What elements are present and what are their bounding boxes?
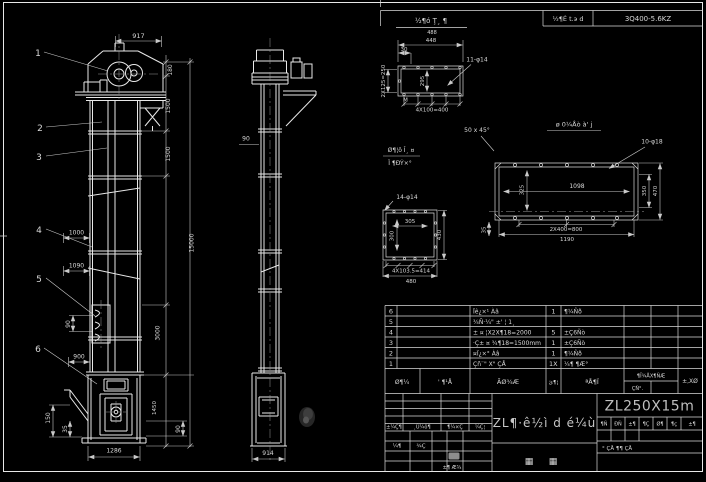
bom-row-qty: 1X [549, 360, 558, 368]
cad-drawing-canvas: ½¶ó Ţ¸ ¶ 488 ½¶É t.э d 3Q400-5.6KZ 1 2 3… [0, 0, 706, 482]
balloon-4: 4 [36, 226, 42, 236]
revision-label: ¶¼×Ç [447, 425, 463, 431]
bom-row-no: 1 [389, 360, 393, 368]
scale-label: ±¶ [688, 422, 695, 428]
revision-label: ¸Ù¼ô¶ [413, 424, 430, 431]
holes-label: 11-φ14 [466, 57, 488, 64]
dim-1190: 1190 [560, 237, 574, 243]
detail-title: ø 0¼Åò à' j [556, 120, 593, 129]
bom-row-no: 4 [389, 329, 393, 337]
detail-square-flange: Ø¶¦ô Î¸ ¤ Ï ¶ÐÝ×° 14-φ14 305 300 430 4X1… [383, 147, 447, 285]
balloon-6: 6 [35, 345, 41, 355]
revision-label: ±¼Ç¶ [386, 425, 402, 431]
dim-1500-a: 1500 [165, 98, 172, 113]
balloon-5: 5 [36, 275, 42, 285]
dim-900: 900 [73, 354, 85, 361]
bom-header-qty: ئ¶¦ [549, 380, 559, 386]
dim-1500-b: 1500 [165, 146, 172, 161]
sheet-row: ° ÇÅ ¶¶ ÇÅ [602, 445, 632, 452]
bom-row-mat: ¶¼Ñð [564, 309, 582, 316]
bom-row-no: 5 [389, 318, 393, 326]
title-block: ±¼Ç¶ ¸Ù¼ô¶ ¶¼×Ç ¼Ç¦ ¼¶ ¾Ç ±¶ Æ¾ ZL¶·ê½ì … [385, 394, 702, 472]
side-boot-outline [250, 373, 287, 446]
holes-label: 10-φ18 [641, 139, 663, 146]
dim-15000: 15000 [189, 233, 196, 252]
bom-row-qty: 1 [551, 339, 555, 347]
bom-header-name: ÃØ¾Æ [497, 377, 519, 386]
side-dim-90: 90 [242, 136, 250, 143]
front-dimensions: 917 1000 1090 90 900 150 35 1286 90 180 … [45, 32, 285, 462]
balloon-leader-lines [44, 52, 108, 384]
dim-3000: 3000 [155, 325, 162, 340]
signature-label-right: ¾Ç [416, 444, 425, 450]
bolt-holes [398, 66, 461, 95]
spacing-dim-line [384, 263, 437, 268]
detail-title-line1: Ø¶¦ô Î¸ ¤ [388, 147, 415, 154]
dim-325: 325 [520, 184, 526, 195]
front-casing-outline [86, 101, 163, 376]
scale-label: ¶Ç [643, 422, 650, 428]
detail-long-flange: ø 0¼Åò à' j 10-φ18 1098 325 350 470 2X40… [482, 120, 664, 244]
dim-30: 30 [401, 47, 408, 53]
product-title: ZL¶·ê½ì d é¼ù [493, 416, 597, 430]
balloon-2: 2 [37, 124, 43, 134]
dim-35-left: 35 [62, 425, 69, 433]
screen-smudge [299, 407, 315, 427]
top-cell-left: ½¶É t.э d [553, 14, 584, 23]
dim-917: 917 [132, 32, 144, 40]
bom-row-no: 6 [389, 308, 393, 316]
dim-2x400: 2X400=800 [550, 227, 583, 233]
weld-mark: M [403, 98, 408, 104]
dim-right: 430 [437, 229, 443, 240]
dim-overall: 448 [426, 38, 437, 44]
dim-470: 470 [653, 185, 659, 196]
top-cell-right: 3Q400-5.6KZ [625, 15, 672, 23]
bom-row-name: ¾Ñ·¼" ±' ¦ 1¸ [473, 319, 515, 326]
bom-row-qty: 1 [551, 308, 555, 316]
dim-inner-h: 305 [405, 219, 416, 225]
bom-row-mat: ±Ç6Ñò [564, 340, 586, 347]
drawing-type-glyph-right: ▦ [549, 457, 558, 467]
dim-1090: 1090 [69, 263, 84, 270]
bom-row-name: ¤Ï¿×° Àâ [473, 351, 500, 358]
top-note-numerator: ½¶ó Ţ¸ ¶ [415, 17, 447, 25]
dim-bottom: 4X100=400 [416, 108, 449, 114]
dim-150: 150 [45, 412, 52, 424]
parts-list-table: 6 Ïê¿×¹ Àâ 1 ¶¼Ñð 5 ¾Ñ·¼" ±' ¦ 1¸ 4 ± ¤ … [385, 306, 702, 472]
bom-row-no: 3 [389, 339, 393, 347]
holes-label: 14-φ14 [396, 194, 418, 201]
chamfer-note: 50 x 45° [464, 127, 490, 134]
dim-350: 350 [642, 185, 648, 196]
side-head-outline [252, 50, 316, 126]
bom-row-name: ·Ç± ¤ ¾¶18=1500mm [473, 340, 541, 347]
top-annotation-bar: ½¶ó Ţ¸ ¶ 488 ½¶É t.э d 3Q400-5.6KZ [381, 11, 703, 37]
bom-row-name: ± ¤ ¦X2X¶18=2000 [473, 330, 532, 337]
scale-label: Ø¶ [656, 421, 663, 428]
dim-1286: 1286 [106, 448, 121, 455]
scale-label: ¶Ñ [601, 421, 608, 428]
dimension-ticks [164, 60, 193, 449]
bom-header-mat: ªÅ¶Ï [585, 377, 599, 386]
bom-header-remark: ±,XØ [682, 378, 698, 385]
bom-row-mat: ±Ç6Ñò [564, 330, 586, 337]
dim-left: 2X125=250 [381, 64, 387, 97]
side-elevation-view: 90 914 [239, 38, 316, 460]
dim-1098: 1098 [569, 183, 584, 190]
dim-1450: 1450 [152, 401, 158, 415]
balloon-1: 1 [35, 49, 41, 59]
stamp-blob [449, 453, 460, 460]
model-number: ZL250X15m [605, 399, 695, 415]
detail-title-line2: Ï ¶ÐÝ×° [388, 160, 412, 167]
balloon-3: 3 [36, 153, 42, 163]
stamp-note: ±¶ Æ¾ [443, 465, 462, 471]
extension-lines [499, 163, 663, 237]
bom-row-name: Ïê¿×¹ Àâ [473, 309, 499, 316]
revision-label: ¼Ç¦ [475, 425, 485, 431]
front-boot-outline [64, 375, 146, 443]
bom-row-qty: 5 [551, 329, 555, 337]
dim-inner: 295 [420, 75, 426, 86]
bom-row-mat: ¶¼Ñð [564, 351, 582, 358]
signature-label-left: ¼¶ [393, 444, 402, 450]
bom-header-code: ' ¶¹Å [438, 379, 453, 386]
bom-row-qty: 1 [551, 350, 555, 358]
dim-bottom2: 480 [406, 279, 417, 285]
bom-row-name: Çñ¨" X" ÇÅ [473, 361, 507, 368]
top-note-denominator: 488 [427, 30, 437, 36]
side-dim-914: 914 [262, 450, 274, 457]
dim-1000: 1000 [69, 230, 84, 237]
bom-header-weight-sub: ÇÑ°. [632, 385, 644, 392]
dim-90-pitch: 90 [65, 320, 72, 328]
drawing-type-glyph-left: ▦ [525, 457, 534, 467]
dim-90-right: 90 [175, 425, 182, 433]
bom-header-no: Ø¶¼ [395, 379, 410, 386]
chamfer-leader [481, 136, 494, 151]
dim-bottom1: 4X103.5=414 [392, 269, 431, 275]
dim-inner-v: 300 [390, 230, 396, 241]
bom-header-weight: ¶Ï¾ÅX¶ÑÆ [637, 373, 665, 380]
scale-label: ÐÑ [614, 421, 622, 428]
scale-label: ±¶ [628, 422, 635, 428]
bom-row-no: 2 [389, 350, 393, 358]
bom-grid [385, 306, 702, 472]
scale-label: ¶ç [671, 422, 677, 428]
detail-top-flange: 448 30 11-φ14 2X125=250 295 M 4X100=400 … [381, 38, 494, 151]
flange-plate-outline [398, 66, 463, 96]
front-elevation-view: 1 2 3 4 5 6 917 1000 1090 90 900 150 35 [35, 32, 285, 462]
dim-180: 180 [167, 64, 174, 76]
bom-row-mat: ¼¶ ¶Æ° [564, 361, 588, 368]
front-head-outline [75, 43, 166, 101]
dim-35: 35 [482, 226, 488, 233]
